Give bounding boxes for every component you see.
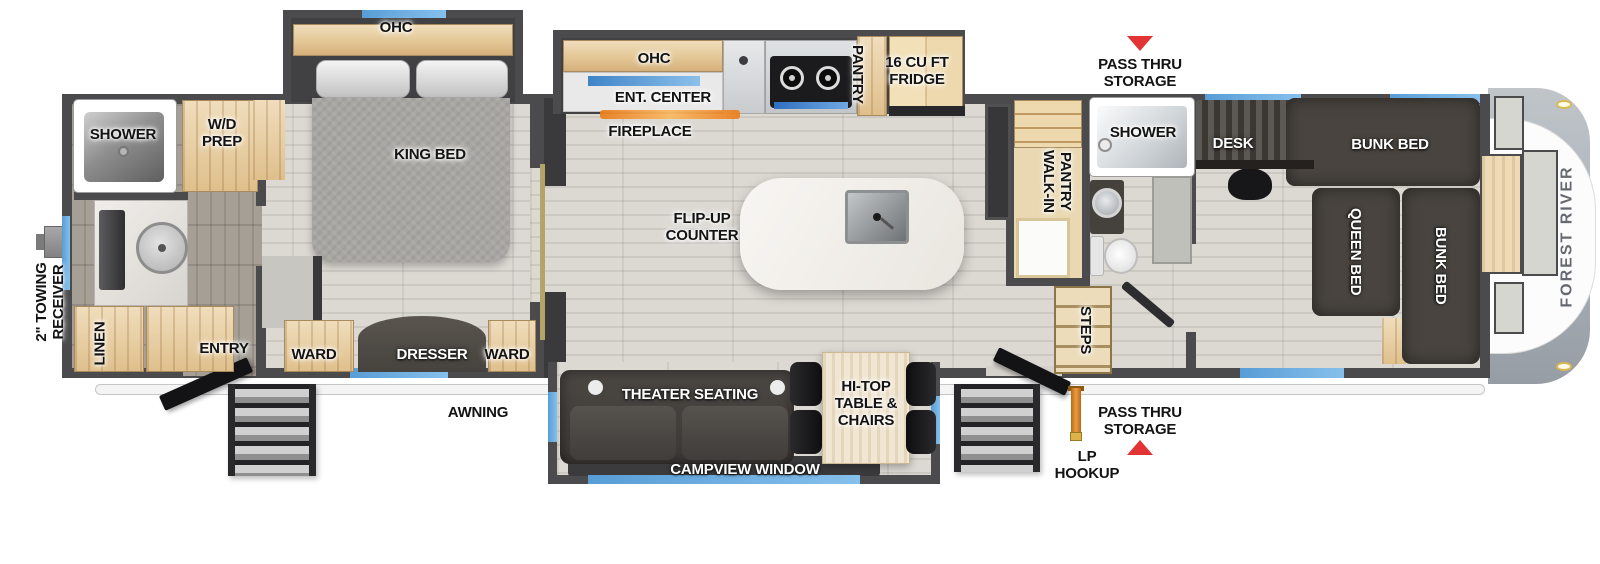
front-wardrobe-wood bbox=[1480, 154, 1522, 274]
rear-bath-partition-wall bbox=[74, 192, 188, 200]
front-storage-bottom bbox=[1494, 282, 1524, 334]
label-theater-seating: THEATER SEATING bbox=[610, 386, 770, 403]
bath-sink bbox=[1092, 188, 1122, 218]
living-slide-window-left bbox=[548, 392, 557, 442]
bedroom-slide-window bbox=[362, 10, 446, 18]
burner-right-center bbox=[825, 75, 831, 81]
label-ent-center: ENT. CENTER bbox=[583, 89, 743, 106]
label-king-bed: KING BED bbox=[360, 146, 500, 163]
theater-cushion-right bbox=[682, 406, 788, 460]
label-bunk-bed-top: BUNK BED bbox=[1320, 136, 1460, 153]
label-towing-receiver: 2" TOWING RECEIVER bbox=[33, 237, 67, 367]
label-ward-left: WARD bbox=[274, 346, 354, 363]
pass-thru-top-arrow bbox=[1127, 36, 1153, 51]
bedroom-pillow-left bbox=[316, 60, 410, 98]
king-bed bbox=[312, 98, 510, 262]
rear-sink-drain bbox=[158, 244, 166, 252]
linen-cabinet bbox=[74, 306, 144, 372]
bedroom-tv-dresser bbox=[262, 256, 322, 328]
refrigerator-base bbox=[889, 106, 965, 116]
fifth-wheel-floorplan: 2" TOWING RECEIVER SHOWER W/D PREP LINEN… bbox=[0, 0, 1600, 564]
label-bunk-bed-side: BUNK BED bbox=[1432, 216, 1449, 316]
tv-screen bbox=[588, 76, 700, 86]
label-walk-in-pantry: WALK-IN PANTRY bbox=[1040, 126, 1076, 236]
rear-shower-drain bbox=[118, 146, 129, 157]
stove-led-strip bbox=[774, 102, 848, 109]
pantry-wall-right bbox=[1082, 94, 1090, 286]
label-bedroom-ohc: OHC bbox=[356, 19, 436, 36]
label-kitchen-ohc: OHC bbox=[614, 50, 694, 67]
label-rear-shower: SHOWER bbox=[73, 126, 173, 143]
label-flip-up-counter: FLIP-UP COUNTER bbox=[632, 210, 772, 244]
toilet-bowl bbox=[1104, 238, 1138, 274]
burner-left-center bbox=[789, 75, 795, 81]
label-forest-river: FOREST RIVER bbox=[1559, 142, 1576, 332]
bedroom-pillow-right bbox=[416, 60, 508, 98]
pantry-bottom-wall bbox=[1006, 278, 1090, 286]
theater-cushion-left bbox=[570, 406, 676, 460]
label-fireplace: FIREPLACE bbox=[570, 123, 730, 140]
label-entry: ENTRY bbox=[184, 340, 264, 357]
fridge-side-cabinet bbox=[985, 104, 1011, 220]
cupholder-right bbox=[770, 380, 785, 395]
cupholder-left bbox=[588, 380, 603, 395]
main-entry-steps bbox=[954, 384, 1040, 472]
label-steps: STEPS bbox=[1077, 298, 1094, 362]
label-pass-thru-bottom: PASS THRU STORAGE bbox=[1070, 404, 1210, 438]
label-queen-bed: QUEEN BED bbox=[1347, 196, 1364, 308]
bedroom-dresser bbox=[358, 316, 486, 372]
fireplace-glow bbox=[600, 110, 740, 119]
desk-chair bbox=[1228, 168, 1272, 200]
label-linen: LINEN bbox=[92, 314, 109, 374]
label-ward-right: WARD bbox=[467, 346, 547, 363]
bunkroom-bottom-window bbox=[1240, 368, 1344, 378]
front-storage-column bbox=[1522, 150, 1558, 276]
label-pass-thru-top: PASS THRU STORAGE bbox=[1070, 56, 1210, 90]
label-awning: AWNING bbox=[418, 404, 538, 421]
label-fridge: 16 CU FT FRIDGE bbox=[857, 54, 977, 88]
pocket-door bbox=[540, 164, 545, 340]
label-hi-top: HI-TOP TABLE & CHAIRS bbox=[806, 378, 926, 429]
bath-cabinet bbox=[1152, 176, 1192, 264]
desk-front-edge bbox=[1196, 160, 1314, 169]
bunkroom-wall-lower bbox=[1186, 332, 1196, 378]
clearance-light-top bbox=[1556, 100, 1572, 109]
label-wd-prep: W/D PREP bbox=[182, 116, 262, 150]
kitchen-faucet bbox=[739, 56, 748, 65]
label-campview-window: CAMPVIEW WINDOW bbox=[645, 461, 845, 478]
rear-entry-steps bbox=[228, 384, 316, 476]
toilet-tank bbox=[1090, 236, 1104, 276]
label-lp-hookup: LP HOOKUP bbox=[1037, 448, 1137, 482]
clearance-light-bottom bbox=[1556, 362, 1572, 371]
label-desk: DESK bbox=[1193, 135, 1273, 152]
rear-kitchen-cabinets bbox=[146, 306, 234, 372]
rear-vanity-appliance bbox=[99, 210, 125, 290]
label-mid-shower: SHOWER bbox=[1093, 124, 1193, 141]
front-storage-top bbox=[1494, 96, 1524, 150]
